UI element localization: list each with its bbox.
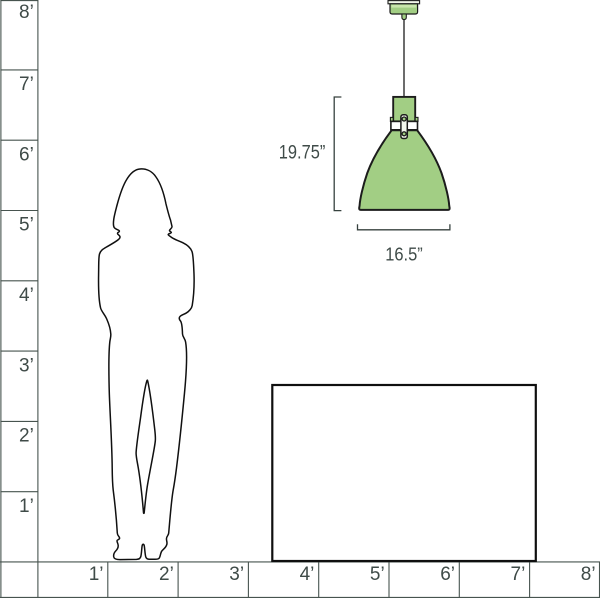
- svg-text:8’: 8’: [581, 564, 596, 585]
- svg-text:8’: 8’: [19, 2, 34, 23]
- svg-text:19.75”: 19.75”: [279, 143, 326, 164]
- svg-text:1’: 1’: [89, 564, 104, 585]
- svg-text:5’: 5’: [19, 215, 34, 236]
- svg-text:7’: 7’: [19, 74, 34, 95]
- svg-text:5’: 5’: [370, 564, 385, 585]
- svg-text:1’: 1’: [19, 496, 34, 517]
- svg-text:16.5”: 16.5”: [385, 244, 423, 265]
- svg-text:7’: 7’: [511, 564, 526, 585]
- svg-text:2’: 2’: [19, 426, 34, 447]
- svg-text:4’: 4’: [19, 285, 34, 306]
- svg-text:6’: 6’: [440, 564, 455, 585]
- svg-text:6’: 6’: [19, 144, 34, 165]
- svg-text:2’: 2’: [159, 564, 174, 585]
- svg-text:3’: 3’: [19, 355, 34, 376]
- svg-text:3’: 3’: [229, 564, 244, 585]
- svg-text:4’: 4’: [300, 564, 315, 585]
